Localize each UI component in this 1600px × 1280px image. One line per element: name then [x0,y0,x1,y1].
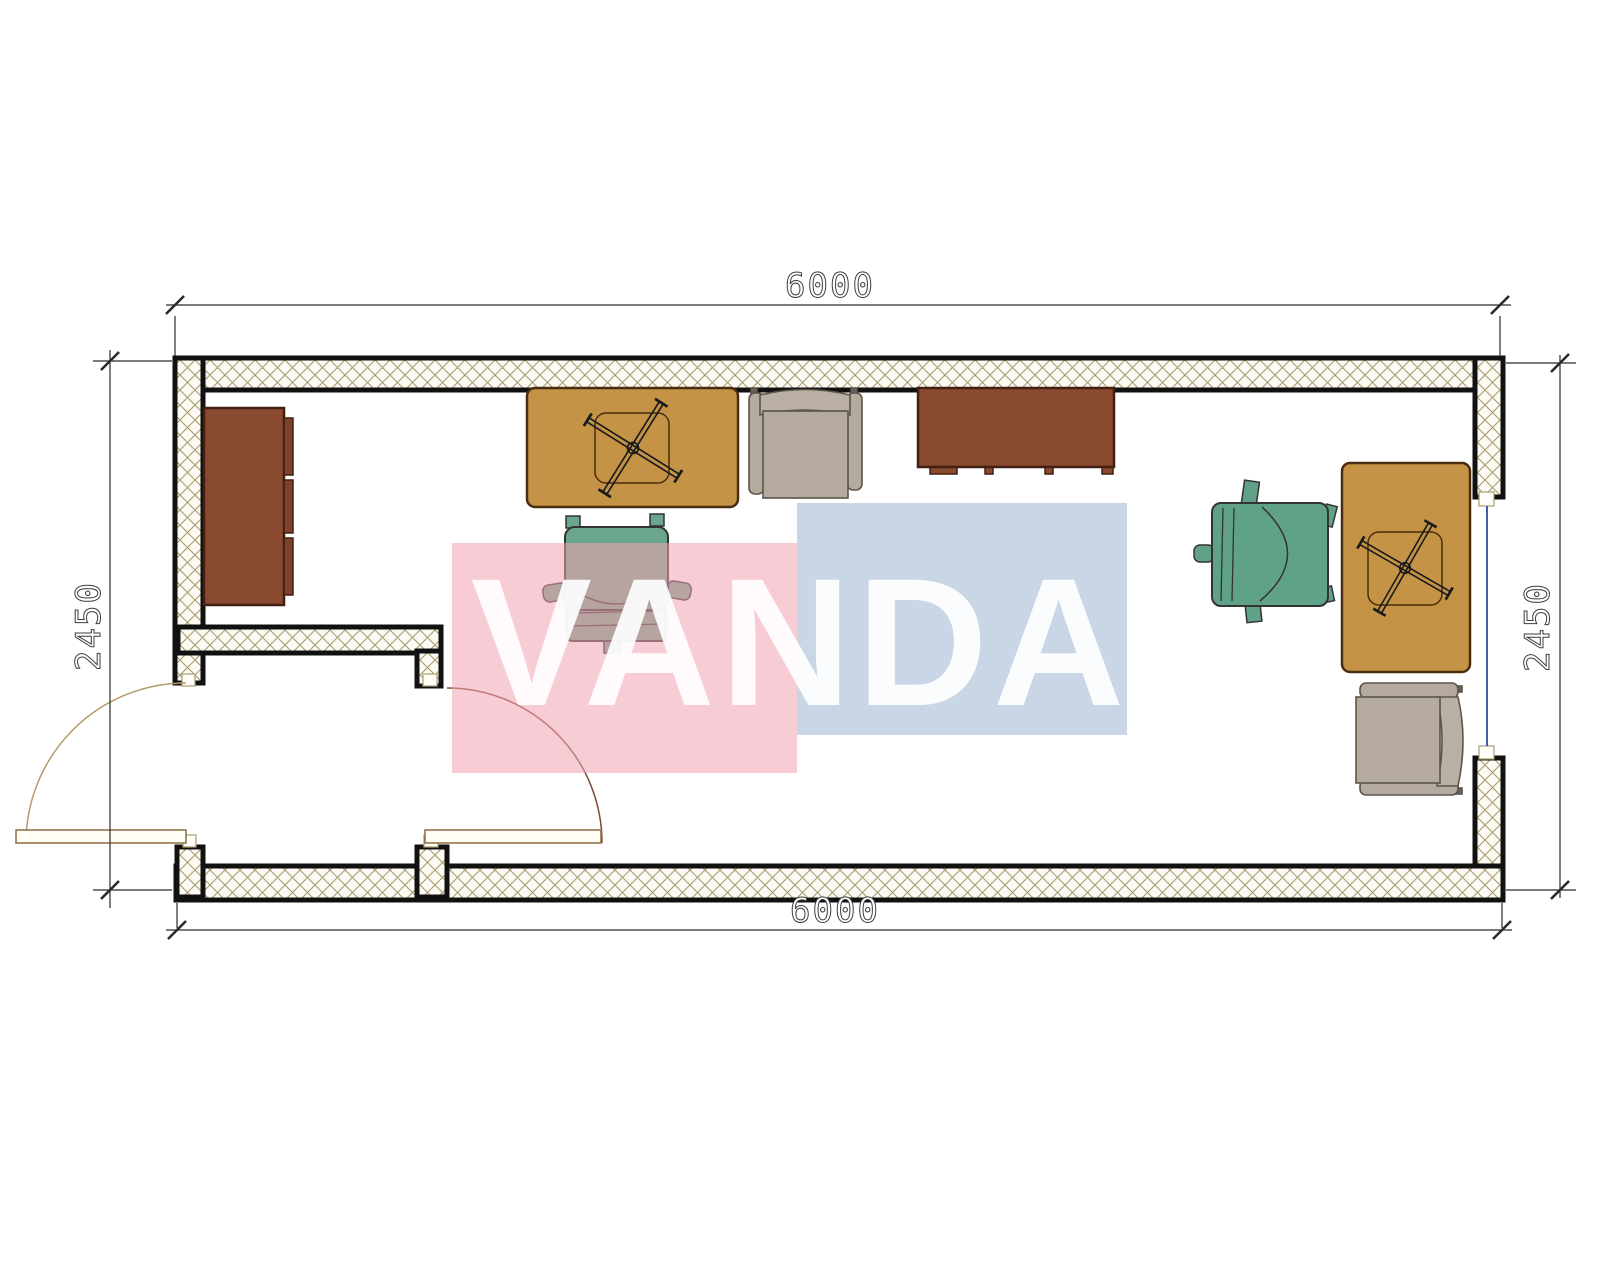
desk-center [527,374,738,521]
jamb-window-bottom [1479,746,1494,759]
partition-wall [178,627,441,653]
vestibule-partition [178,627,441,686]
watermark-text: VANDA [471,540,1130,744]
vestibule-door-leaf [425,830,601,843]
floor-plan-canvas: 6000 6000 2450 2450 VANDA [0,0,1600,1280]
armchair-top [749,388,862,498]
entry-door [16,683,186,843]
dimension-left: 2450 [69,350,172,908]
dim-label-left: 2450 [69,581,109,671]
entry-door-swing-arc [26,683,186,843]
jamb-window-top [1479,492,1494,506]
wall-bottom-left-pier [177,847,203,897]
sideboard-top [918,388,1114,474]
cabinet-left [204,408,293,605]
dim-label-bottom: 6000 [790,891,880,931]
wall-right-upper [1475,358,1503,497]
office-chair-right [1194,480,1337,623]
wall-door-pier [417,847,447,897]
jamb-vestibule-top [423,674,437,686]
jamb-entry-top [182,674,195,686]
desk-right [1335,463,1474,672]
armchair-bottom-right [1356,683,1463,795]
dimension-top: 6000 [166,266,1511,356]
dim-label-top: 6000 [785,266,875,306]
entry-door-leaf [16,830,186,843]
floor-plan-page: 6000 6000 2450 2450 VANDA [0,0,1600,1280]
wall-top [175,358,1503,390]
dim-label-right: 2450 [1518,582,1558,672]
dimension-right: 2450 [1506,354,1576,899]
watermark: VANDA [452,503,1129,773]
